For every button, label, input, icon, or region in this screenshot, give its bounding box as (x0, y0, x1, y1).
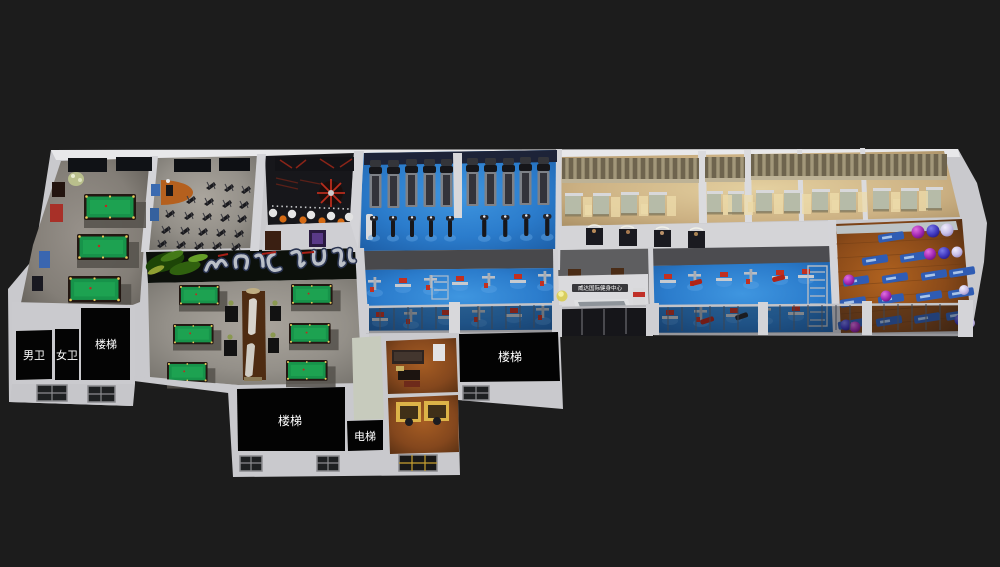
svg-text:楼梯: 楼梯 (95, 337, 117, 351)
svg-text:威达国际健身中心: 威达国际健身中心 (578, 284, 623, 292)
svg-text:女卫: 女卫 (56, 348, 78, 362)
svg-text:楼梯: 楼梯 (498, 349, 522, 364)
svg-text:电梯: 电梯 (354, 430, 376, 443)
svg-text:男卫: 男卫 (23, 350, 45, 362)
svg-text:楼梯: 楼梯 (278, 413, 302, 428)
